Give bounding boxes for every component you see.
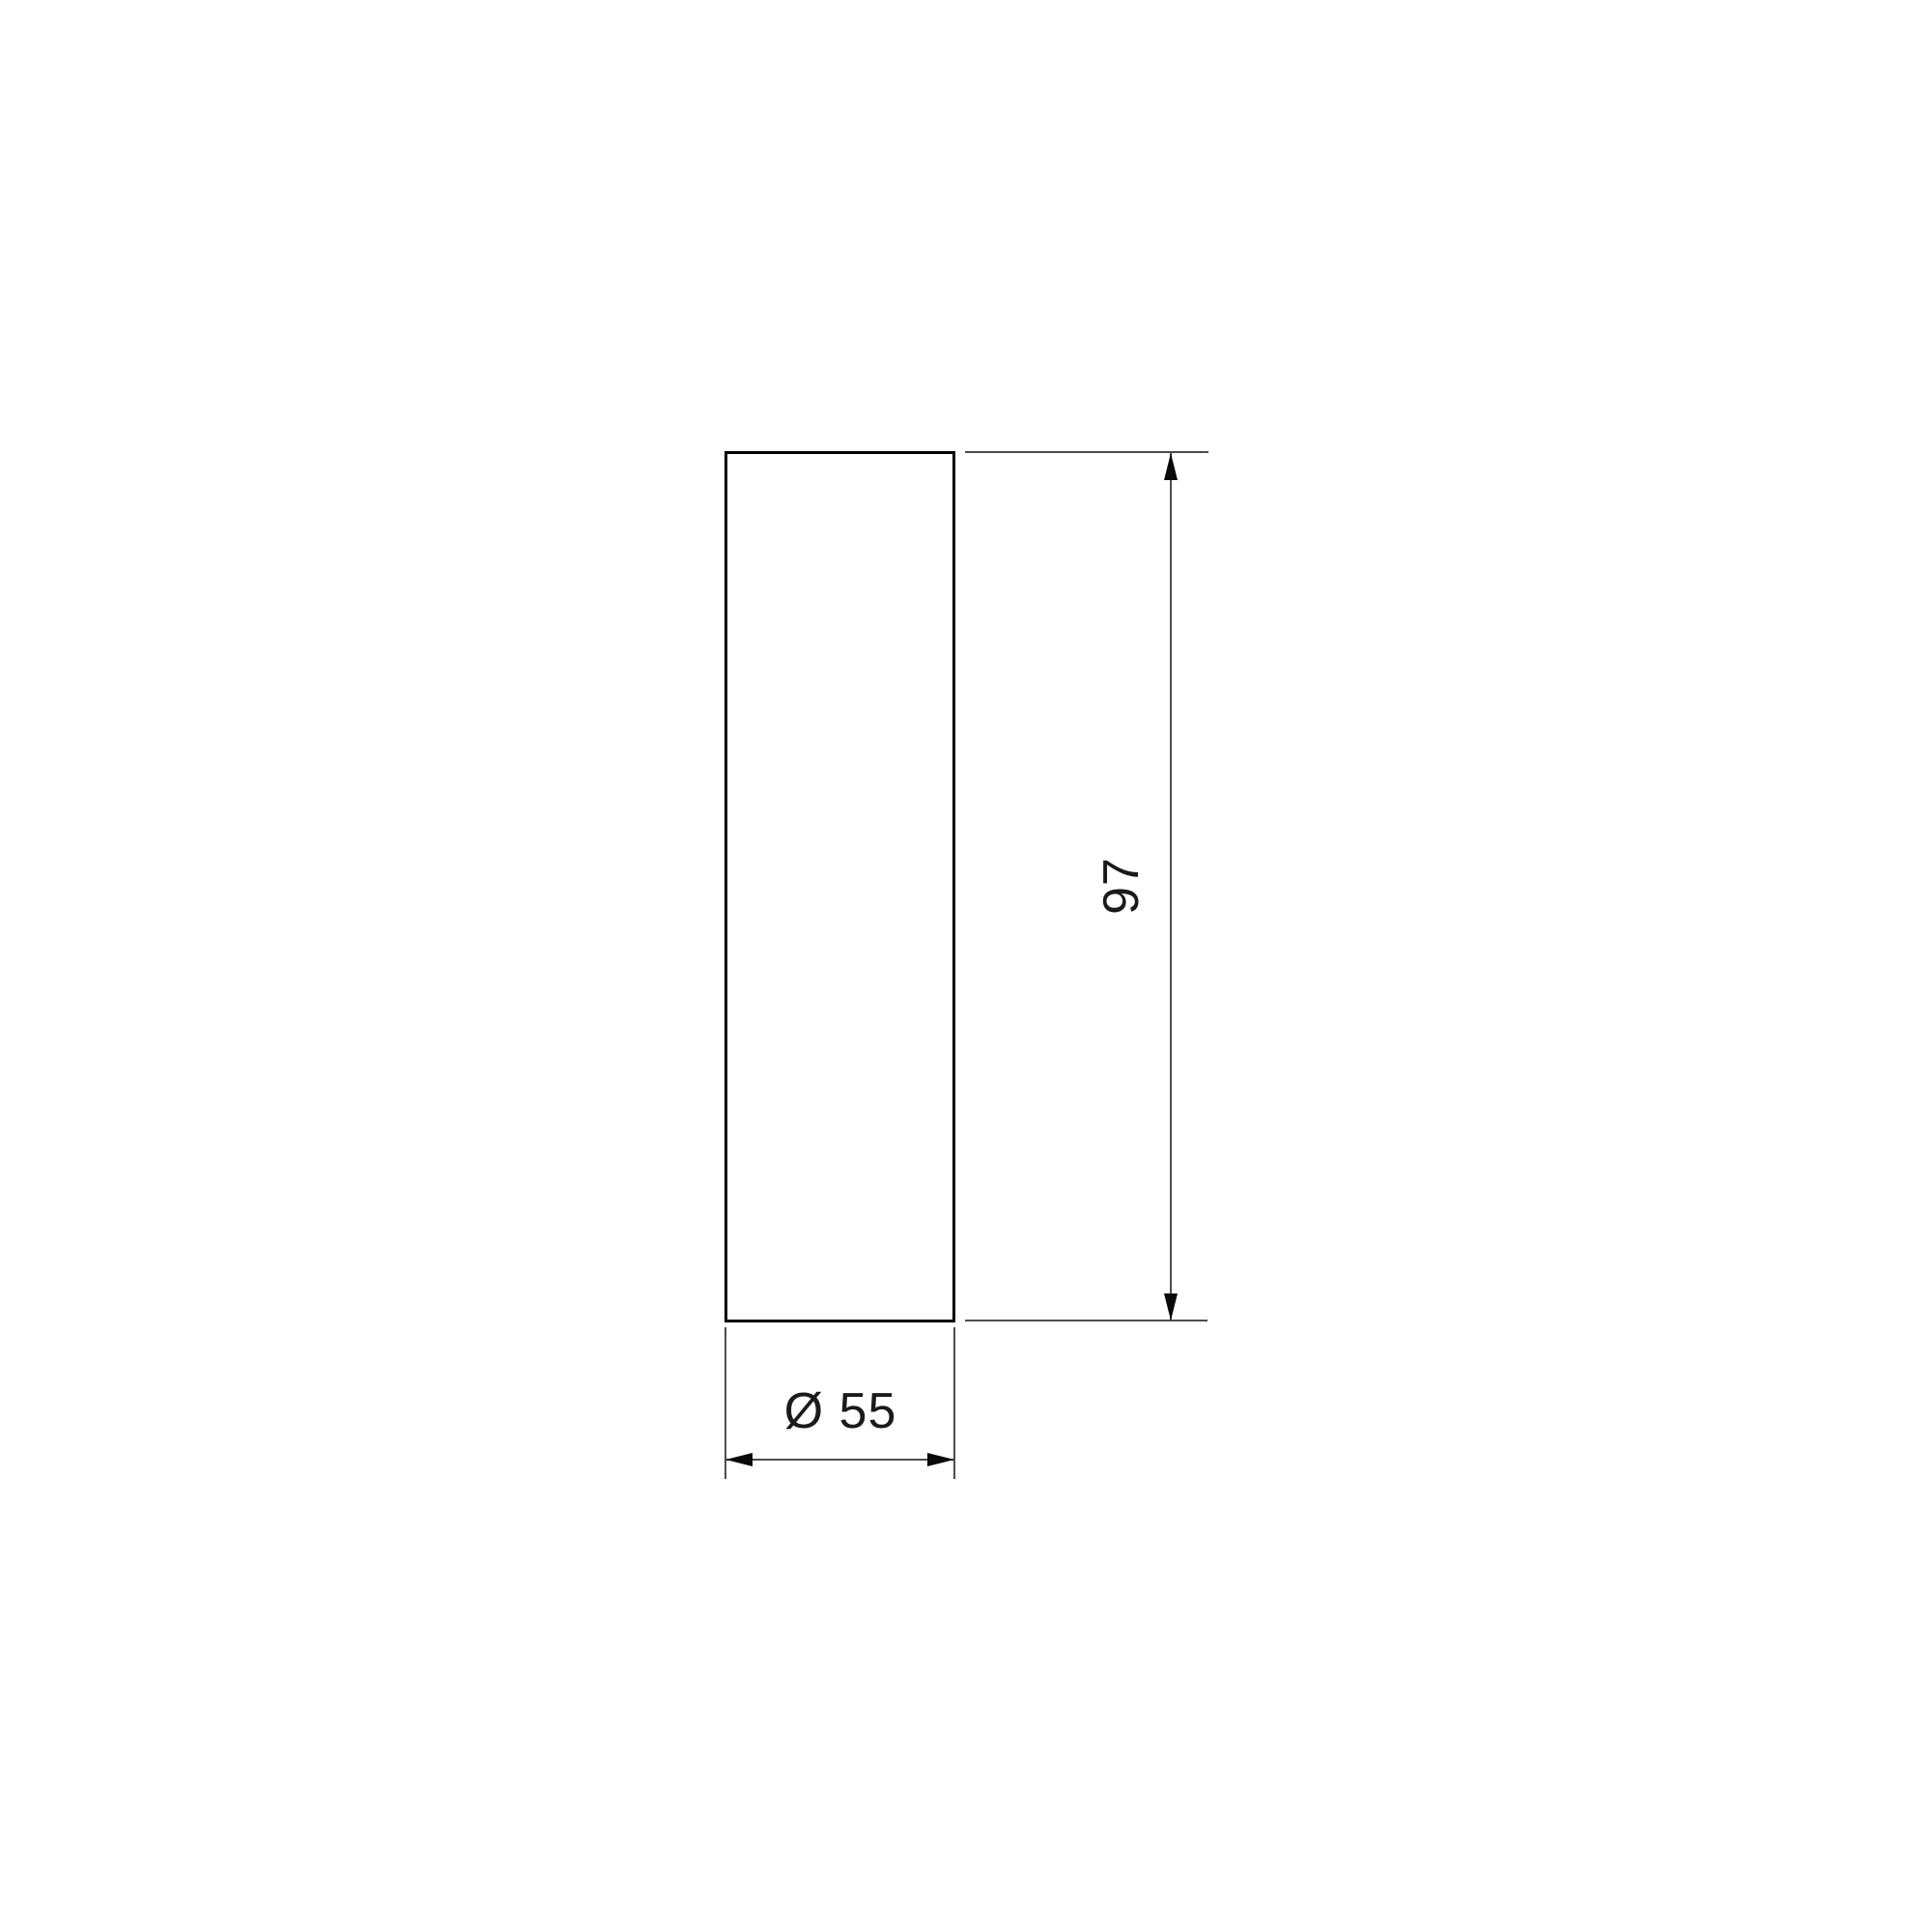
part-outline xyxy=(724,451,955,1322)
height-dimension-label: 97 xyxy=(1093,857,1151,915)
diameter-dimension-label: Ø 55 xyxy=(784,1382,897,1440)
arrow-down-icon xyxy=(1164,1293,1178,1321)
arrow-left-icon xyxy=(725,1453,753,1466)
arrow-right-icon xyxy=(927,1453,954,1466)
arrow-up-icon xyxy=(1164,453,1178,480)
diameter-dimension-line xyxy=(725,1459,954,1461)
drawing-canvas: 97 Ø 55 xyxy=(0,0,1932,1932)
height-dimension-line xyxy=(1170,453,1172,1321)
